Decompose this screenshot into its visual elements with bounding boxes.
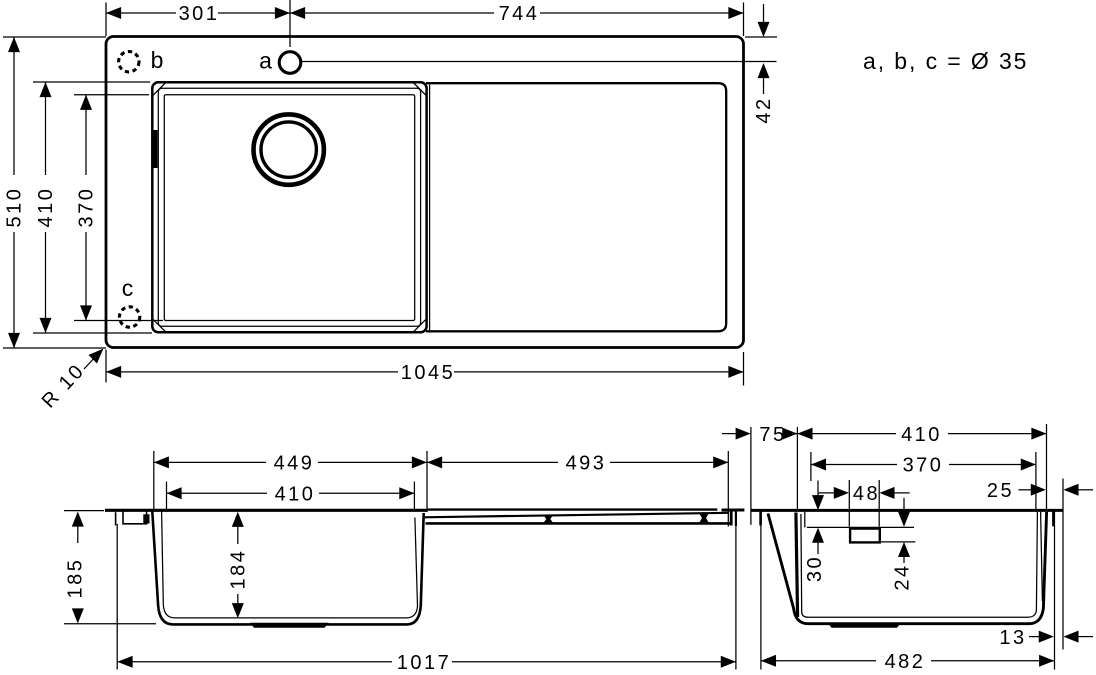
svg-text:410: 410 xyxy=(275,483,316,505)
svg-text:449: 449 xyxy=(274,453,315,475)
svg-text:1045: 1045 xyxy=(401,362,456,384)
svg-text:a, b, c = Ø 35: a, b, c = Ø 35 xyxy=(863,48,1028,74)
svg-text:13: 13 xyxy=(999,627,1026,649)
svg-text:a: a xyxy=(259,47,272,73)
svg-text:301: 301 xyxy=(179,3,220,25)
svg-text:410: 410 xyxy=(901,424,942,446)
svg-text:48: 48 xyxy=(853,483,880,505)
svg-text:c: c xyxy=(122,275,134,301)
svg-text:370: 370 xyxy=(76,187,98,228)
svg-text:1017: 1017 xyxy=(397,652,452,674)
svg-text:482: 482 xyxy=(885,651,926,673)
svg-text:24: 24 xyxy=(892,563,914,590)
svg-text:25: 25 xyxy=(987,480,1014,502)
svg-text:744: 744 xyxy=(499,3,540,25)
svg-text:493: 493 xyxy=(566,453,607,475)
svg-text:185: 185 xyxy=(65,558,87,599)
svg-text:b: b xyxy=(151,47,164,73)
svg-text:184: 184 xyxy=(227,549,249,590)
svg-text:510: 510 xyxy=(4,187,26,228)
svg-text:410: 410 xyxy=(35,187,57,228)
svg-text:30: 30 xyxy=(804,555,826,582)
svg-text:42: 42 xyxy=(753,96,775,123)
svg-text:370: 370 xyxy=(903,455,944,477)
